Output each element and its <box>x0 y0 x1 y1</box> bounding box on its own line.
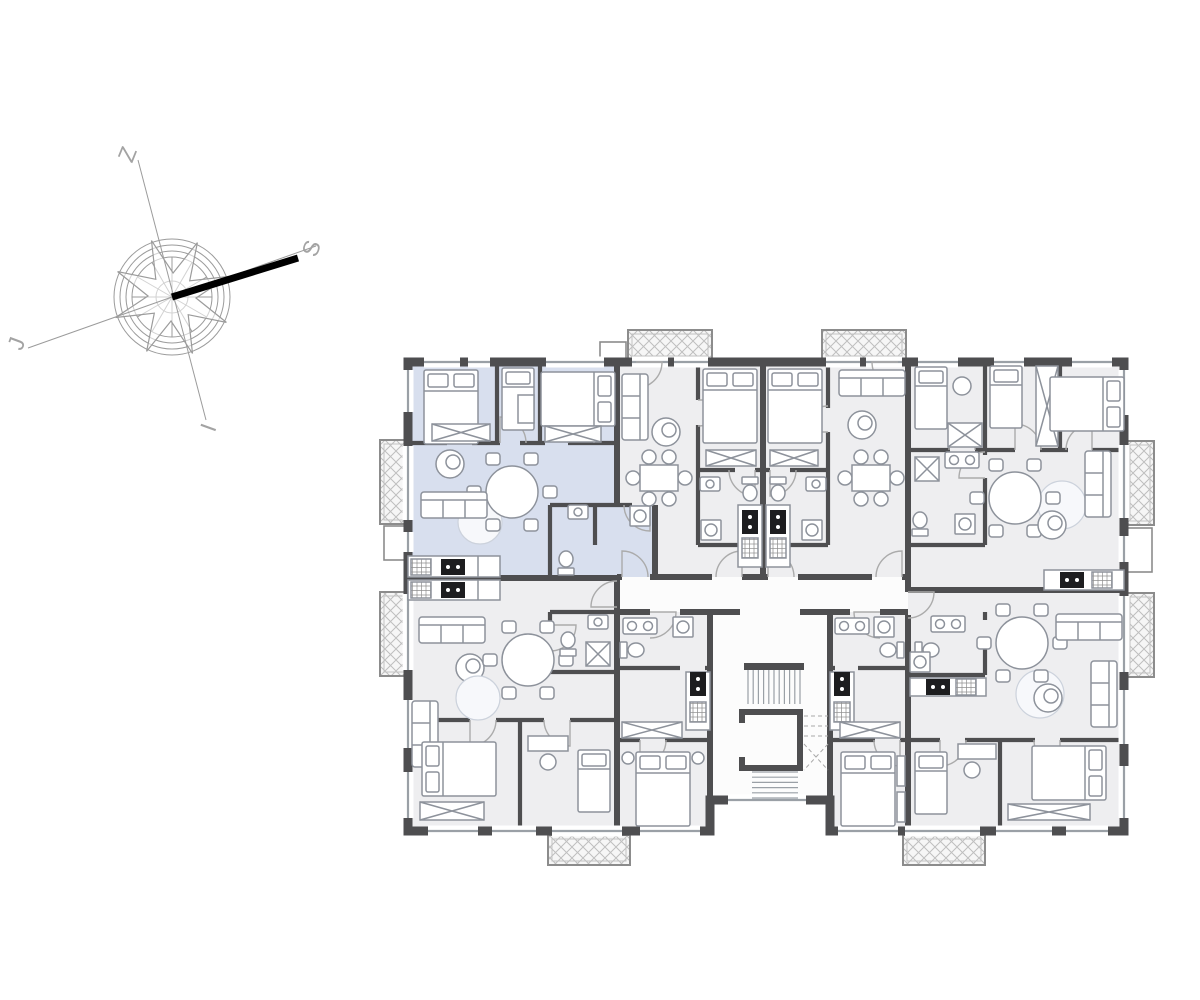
toilet <box>560 632 576 656</box>
double-sink <box>945 452 979 468</box>
sink <box>568 505 588 519</box>
double-bed <box>703 369 757 443</box>
stove <box>1060 572 1084 588</box>
stove <box>441 559 465 575</box>
wardrobe <box>1008 804 1090 820</box>
toilet <box>912 512 928 536</box>
toilet <box>620 642 644 658</box>
toilet <box>558 551 574 575</box>
double-bed <box>422 742 496 796</box>
sofa <box>1085 451 1111 517</box>
double-bed <box>541 372 615 426</box>
compass-label-south: J <box>2 333 30 353</box>
stove <box>742 510 758 534</box>
kitchen-sink <box>742 538 758 558</box>
wardrobe <box>770 450 818 466</box>
balcony-bottom-right <box>903 835 985 865</box>
washing-machine <box>673 617 693 637</box>
shower <box>586 642 610 666</box>
washing-machine <box>802 520 822 540</box>
wardrobe <box>622 722 682 738</box>
double-sink <box>835 618 869 634</box>
stool <box>964 762 980 778</box>
balcony-right-lower <box>1126 593 1154 677</box>
balcony-top-right <box>822 330 906 360</box>
wardrobe <box>420 802 484 820</box>
kitchen-sink <box>690 702 706 722</box>
sink <box>588 615 608 629</box>
armchair <box>1038 511 1066 539</box>
floorplan-drawing: Z S J I <box>0 0 1200 1000</box>
sofa <box>419 617 485 643</box>
balcony-right-upper <box>1126 441 1154 525</box>
compass-rose: Z S J I <box>2 143 326 435</box>
stove <box>834 672 850 696</box>
desk <box>518 395 534 423</box>
wardrobe <box>706 450 756 466</box>
double-bed <box>768 369 822 443</box>
washing-machine <box>910 652 930 672</box>
sofa <box>1056 614 1122 640</box>
stool <box>622 752 634 764</box>
armchair <box>436 450 464 478</box>
floorplan-page: Z S J I <box>0 0 1200 1000</box>
kitchen-sink <box>411 582 431 598</box>
wardrobe <box>545 426 601 442</box>
rug <box>456 676 500 720</box>
stove <box>770 510 786 534</box>
kitchen-sink <box>956 679 976 695</box>
double-bed <box>1032 746 1106 800</box>
stool <box>953 377 971 395</box>
desk <box>958 744 996 759</box>
toilet <box>880 642 904 658</box>
sink <box>806 477 826 491</box>
sofa <box>622 374 648 440</box>
single-bed <box>990 366 1022 428</box>
stair-landing-edge <box>744 663 804 670</box>
kitchen-sink <box>1092 572 1112 588</box>
building-plan <box>380 330 1154 865</box>
wall-shaft-right <box>1126 528 1152 572</box>
stool <box>540 754 556 770</box>
wardrobe <box>432 424 490 441</box>
wardrobe <box>948 423 982 447</box>
wardrobe <box>840 722 900 738</box>
compass-label-east: I <box>195 420 222 435</box>
compass-label-north: S <box>296 237 326 260</box>
sofa <box>1091 661 1117 727</box>
closet-shelf <box>897 756 905 786</box>
double-sink <box>931 616 965 632</box>
sink <box>700 477 720 491</box>
toilet <box>770 477 786 501</box>
washing-machine <box>701 520 721 540</box>
shower <box>915 457 939 481</box>
toilet <box>742 477 758 501</box>
armchair <box>1034 684 1062 712</box>
double-sink <box>623 618 657 634</box>
double-bed <box>1050 377 1124 431</box>
stove <box>690 672 706 696</box>
single-bed <box>578 750 610 812</box>
compass-label-west: Z <box>113 143 142 166</box>
stove <box>926 679 950 695</box>
kitchen-sink <box>834 702 850 722</box>
corridor <box>617 577 908 612</box>
double-bed <box>841 752 895 826</box>
single-bed <box>915 752 947 814</box>
armchair <box>848 411 876 439</box>
stove <box>441 582 465 598</box>
closet-shelf <box>897 792 905 822</box>
washing-machine <box>630 506 650 526</box>
kitchen-sink <box>411 559 431 575</box>
double-bed <box>636 752 690 826</box>
kitchen-sink <box>770 538 786 558</box>
sofa <box>839 370 905 396</box>
single-bed <box>915 367 947 429</box>
balcony-bottom-left <box>548 835 630 865</box>
balcony-top-left <box>628 330 712 360</box>
stool <box>692 752 704 764</box>
washing-machine <box>955 514 975 534</box>
washing-machine <box>874 617 894 637</box>
armchair <box>652 418 680 446</box>
desk <box>528 736 568 751</box>
sofa <box>421 492 487 518</box>
